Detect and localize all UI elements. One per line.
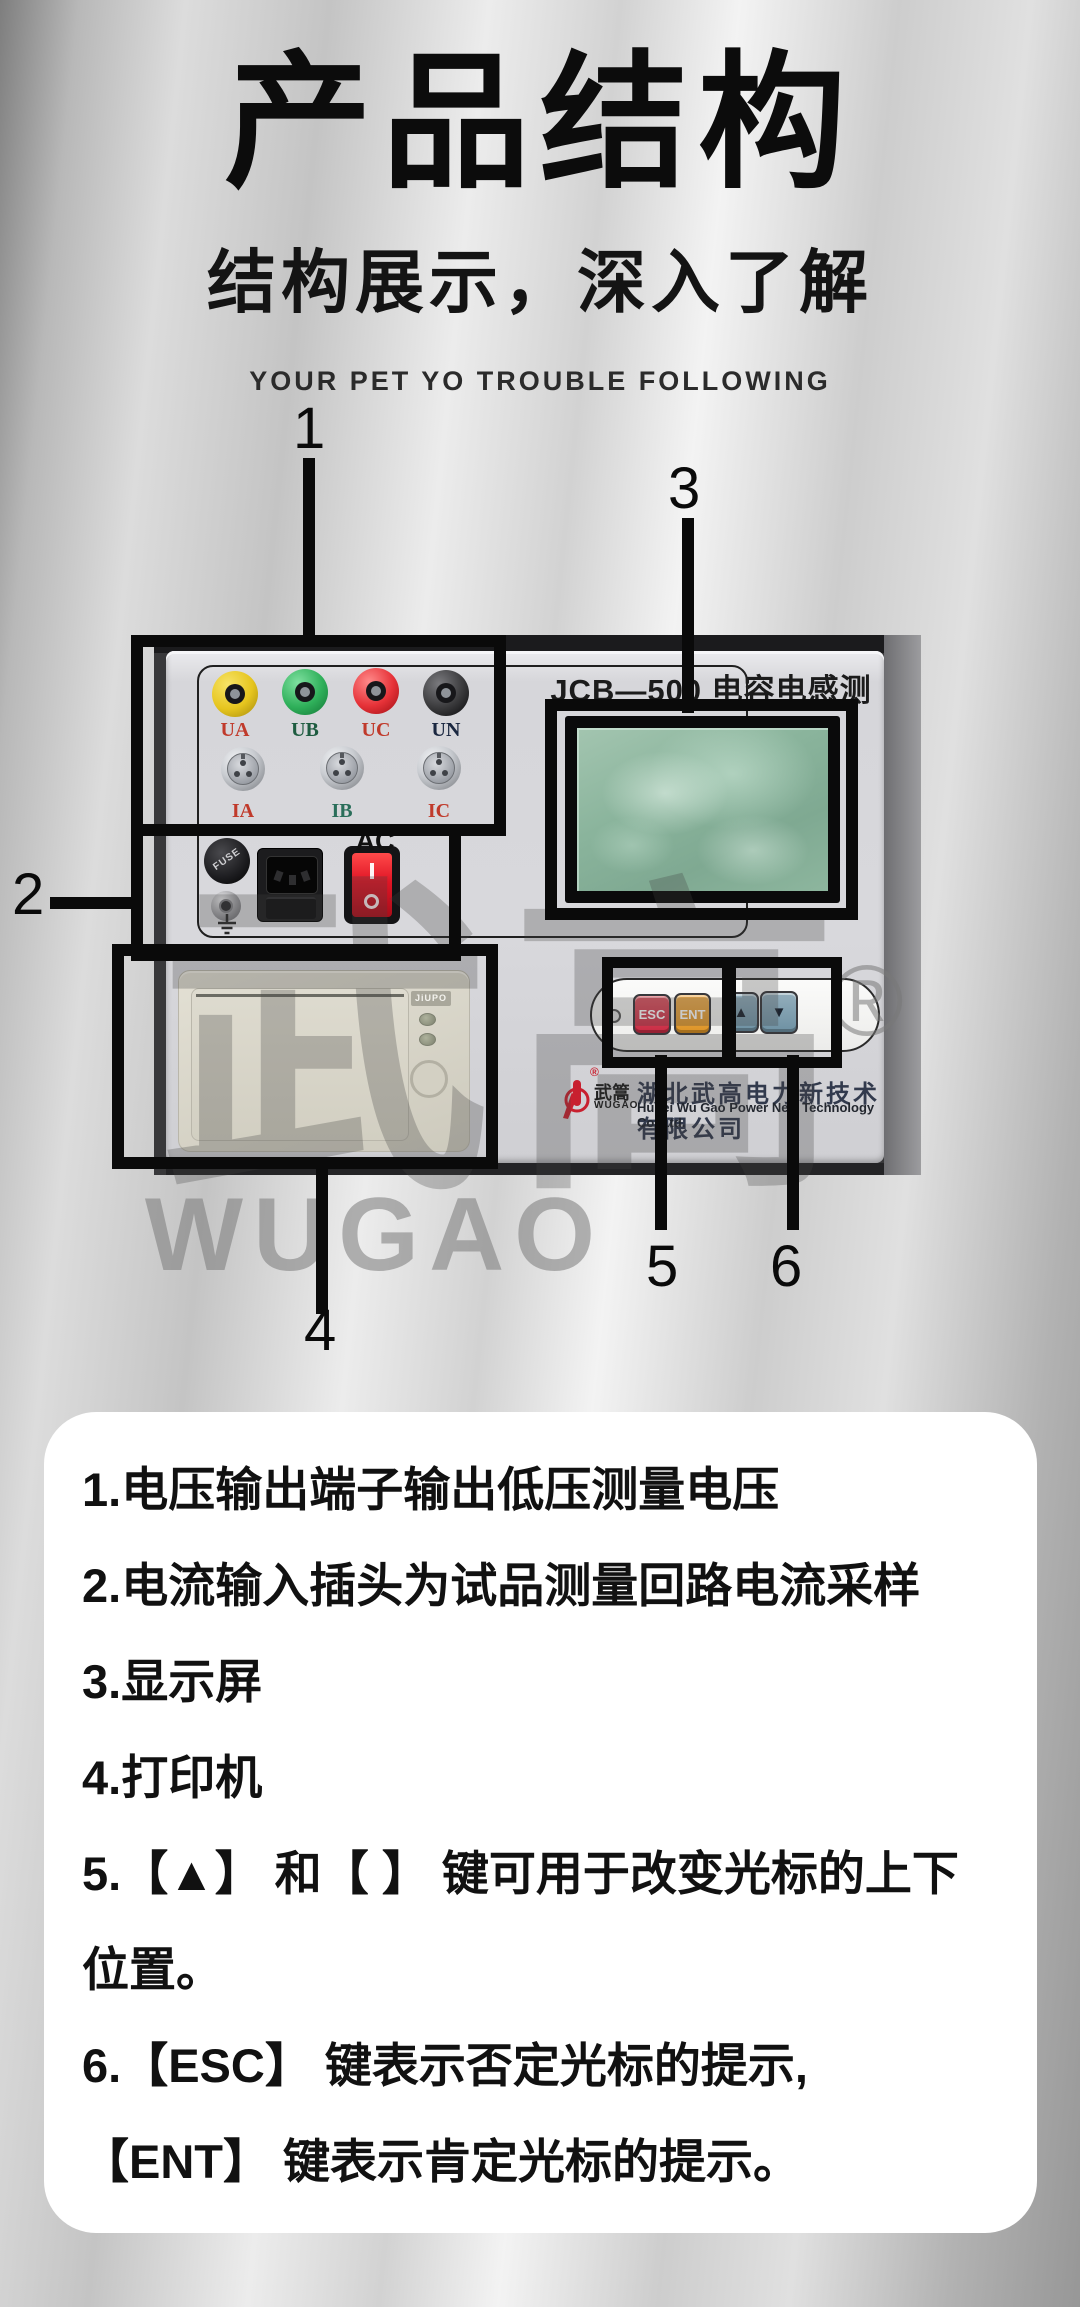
callout-line-6 [787,1055,799,1230]
callout-box-4-printer [112,944,498,1169]
note-item-5: 5.【▲】 和【 】 键可用于改变光标的上下位置。 [82,1826,993,2018]
callout-line-2 [50,897,137,909]
brand-logo-icon [561,1072,591,1120]
callout-line-4 [316,1158,328,1314]
callout-number-6: 6 [770,1238,802,1296]
callout-number-1: 1 [293,400,325,458]
callout-number-5: 5 [646,1238,678,1296]
page-title: 产品结构 [0,46,1080,201]
callout-number-2: 2 [12,866,44,924]
callout-line-3 [682,518,694,713]
page-subtitle: 结构展示，深入了解 [0,226,1080,326]
note-item-4: 4.打印机 [82,1730,993,1826]
callout-number-3: 3 [668,460,700,518]
page-tagline: YOUR PET YO TROUBLE FOLLOWING [0,366,1080,397]
registered-mark: ® [590,1065,599,1079]
photo-background-side [884,635,921,1175]
callout-number-4: 4 [304,1302,336,1360]
callout-box-5-esc-ent-keys [602,957,733,1068]
callout-box-6-arrow-keys [725,957,842,1068]
callout-line-1 [303,458,315,643]
notes-card: 1.电压输出端子输出低压测量电压 2.电流输入插头为试品测量回路电流采样 3.显… [44,1412,1037,2233]
callout-box-1-voltage-terminals [131,635,506,836]
callout-box-2-current-power [131,824,461,961]
note-item-1: 1.电压输出端子输出低压测量电压 [82,1442,993,1538]
page: { "header": { "title": "产品结构", "subtitle… [0,0,1080,2307]
note-item-6: 6.【ESC】 键表示否定光标的提示,【ENT】 键表示肯定光标的提示。 [82,2018,993,2210]
brand-name-en: WUGAO [594,1100,638,1111]
callout-line-5 [655,1055,667,1230]
watermark-en: WUGAO [0,1176,750,1295]
callout-box-3-display [545,699,858,920]
company-name-en: Hubei Wu Gao Power New Technology Co.,Lt… [637,1100,884,1130]
note-item-2: 2.电流输入插头为试品测量回路电流采样 [82,1538,993,1634]
note-item-3: 3.显示屏 [82,1634,993,1730]
